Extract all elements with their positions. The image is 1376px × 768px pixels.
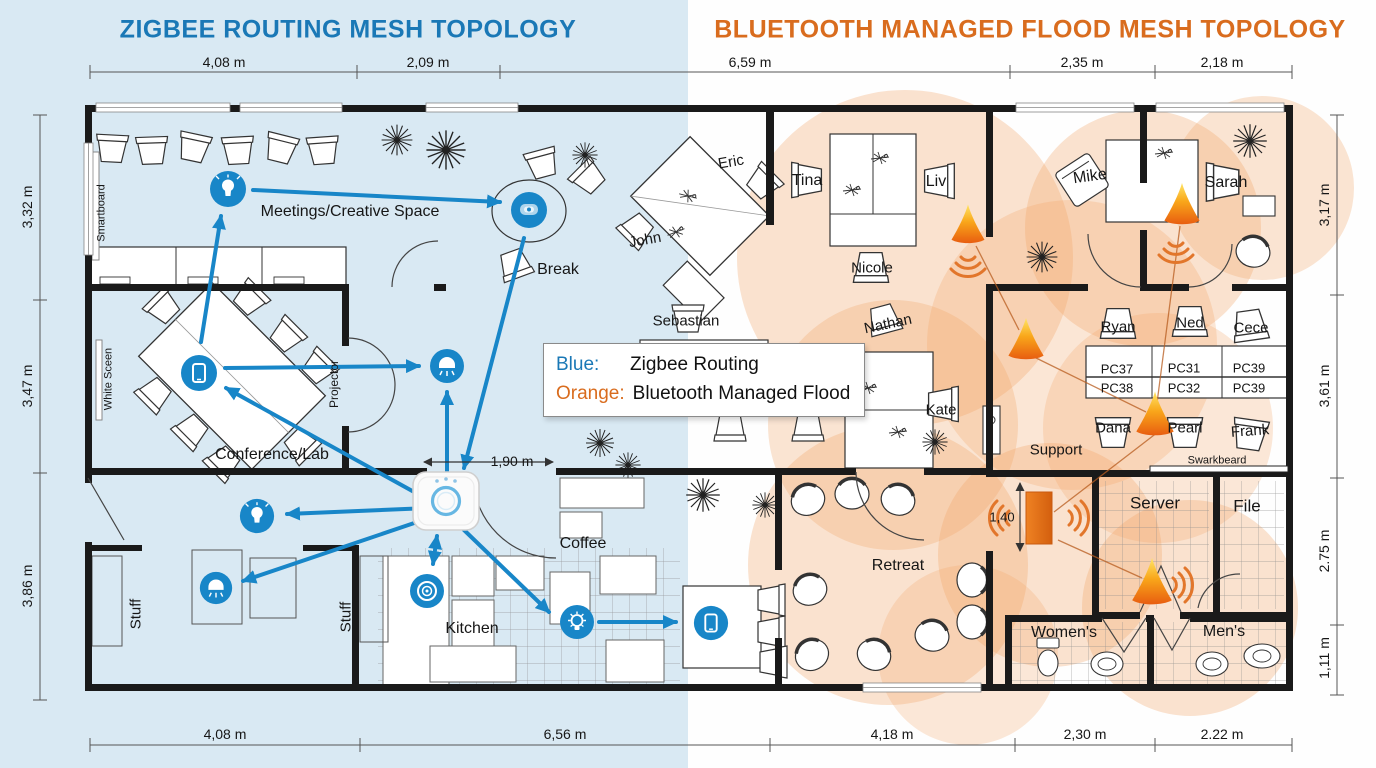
legend: Blue: Zigbee Routing Orange: Bluetooth M… bbox=[543, 343, 865, 417]
dim-top-1: 4,08 m bbox=[203, 55, 246, 69]
label-swarkbeard: Swarkbeard bbox=[1188, 456, 1247, 467]
person-dana: Dana bbox=[1095, 421, 1131, 436]
dim-right-2: 3,61 m bbox=[1317, 365, 1331, 408]
room-meetings: Meetings/Creative Space bbox=[261, 204, 440, 220]
zigbee-title: ZIGBEE ROUTING MESH TOPOLOGY bbox=[120, 18, 577, 43]
person-sarah: Sarah bbox=[1205, 175, 1248, 191]
pc-label: PC38 bbox=[1101, 382, 1134, 395]
room-stuff-b: Stuff bbox=[339, 602, 354, 633]
room-womens: Women's bbox=[1031, 625, 1097, 641]
dim-hub-clearance: 1,90 m bbox=[491, 454, 534, 468]
person-nicole: Nicole bbox=[851, 261, 893, 276]
person-cece: Cece bbox=[1233, 321, 1268, 336]
label-smartboard: Smartboard bbox=[97, 184, 108, 241]
person-ned: Ned bbox=[1176, 316, 1204, 331]
swarkbeard-board bbox=[1150, 466, 1288, 472]
dim-top-5: 2,18 m bbox=[1201, 55, 1244, 69]
room-server: Server bbox=[1130, 495, 1180, 512]
dim-bottom-3: 4,18 m bbox=[871, 727, 914, 741]
phone-icon bbox=[181, 355, 217, 391]
legend-orange-value: Bluetooth Managed Flood bbox=[633, 380, 851, 409]
dim-bottom-5: 2.22 m bbox=[1201, 727, 1244, 741]
person-frank: Frank bbox=[1230, 422, 1269, 440]
zigbee-hub-icon bbox=[413, 472, 479, 530]
person-ryan: Ryan bbox=[1100, 320, 1135, 335]
dim-top-4: 2,35 m bbox=[1061, 55, 1104, 69]
legend-blue-value: Zigbee Routing bbox=[630, 351, 759, 380]
person-pearl: Pearl bbox=[1167, 421, 1202, 436]
person-liv: Liv bbox=[926, 174, 946, 190]
pc-label: PC37 bbox=[1101, 363, 1134, 376]
dim-bottom-4: 2,30 m bbox=[1064, 727, 1107, 741]
smart-bulb-icon bbox=[210, 171, 246, 207]
dim-door-width: 1,40 bbox=[989, 511, 1014, 524]
room-stuff-a: Stuff bbox=[129, 599, 144, 630]
dim-right-1: 3,17 m bbox=[1317, 184, 1331, 227]
dim-left-2: 3,47 m bbox=[20, 365, 34, 408]
label-white-screen: White Sceen bbox=[104, 348, 115, 410]
smart-speaker-icon bbox=[410, 574, 444, 608]
dim-right-4: 1,11 m bbox=[1317, 637, 1331, 679]
person-kate: Kate bbox=[926, 403, 957, 418]
legend-blue-key: Blue: bbox=[556, 351, 622, 380]
room-mens: Men's bbox=[1203, 624, 1245, 640]
smart-bulb-icon bbox=[240, 499, 274, 533]
room-support: Support bbox=[1030, 443, 1083, 458]
dim-left-3: 3,86 m bbox=[20, 565, 34, 608]
person-sebastian: Sebastian bbox=[653, 314, 720, 329]
dim-top-2: 2,09 m bbox=[407, 55, 450, 69]
person-eric: Eric bbox=[717, 152, 745, 171]
pc-label: PC32 bbox=[1168, 382, 1201, 395]
dim-top-3: 6,59 m bbox=[729, 55, 772, 69]
person-tina: Tina bbox=[792, 173, 823, 189]
dim-left-1: 3,32 m bbox=[20, 186, 34, 229]
dim-bottom-1: 4,08 m bbox=[204, 727, 247, 741]
bluetooth-gateway-icon bbox=[1026, 492, 1052, 544]
pc-label: PC39 bbox=[1233, 382, 1266, 395]
pc-label: PC39 bbox=[1233, 362, 1266, 375]
room-break: Break bbox=[537, 262, 579, 278]
room-coffee: Coffee bbox=[560, 536, 607, 552]
room-file: File bbox=[1233, 498, 1260, 515]
phone-icon bbox=[694, 606, 728, 640]
room-retreat: Retreat bbox=[872, 558, 924, 574]
downlight-icon bbox=[200, 572, 232, 604]
pc-label: PC31 bbox=[1168, 362, 1201, 375]
dim-right-3: 2.75 m bbox=[1317, 530, 1331, 573]
dim-bottom-2: 6,56 m bbox=[544, 727, 587, 741]
ceiling-light-icon bbox=[511, 192, 547, 228]
downlight-icon bbox=[430, 349, 464, 383]
floorplan-comparison: ZIGBEE ROUTING MESH TOPOLOGY BLUETOOTH M… bbox=[0, 0, 1376, 768]
smart-device-icon bbox=[560, 605, 594, 639]
room-conference: Conference/Lab bbox=[215, 447, 329, 463]
legend-orange-key: Orange: bbox=[556, 380, 625, 409]
room-kitchen: Kitchen bbox=[445, 621, 498, 637]
label-projector: Projector bbox=[328, 360, 340, 408]
bluetooth-title: BLUETOOTH MANAGED FLOOD MESH TOPOLOGY bbox=[714, 18, 1345, 43]
